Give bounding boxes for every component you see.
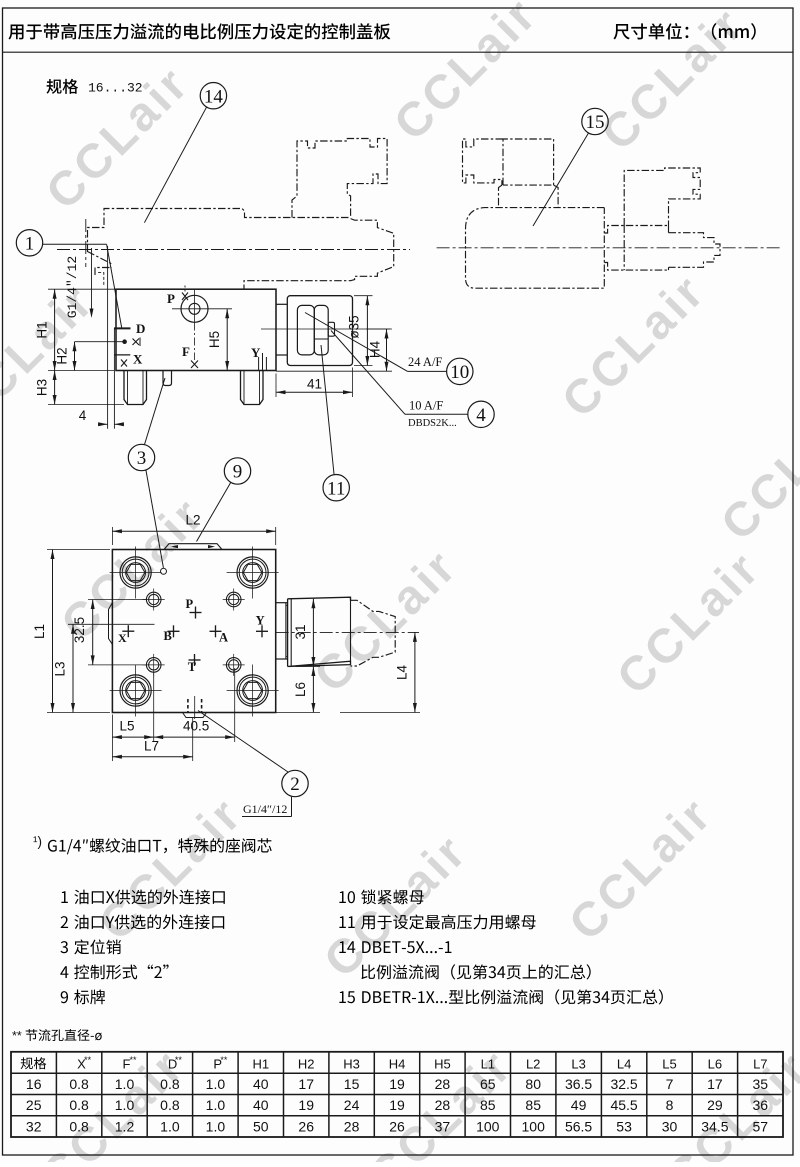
svg-text:36: 36 — [753, 1097, 769, 1113]
svg-text:L1: L1 — [481, 1057, 495, 1072]
svg-text:1.0: 1.0 — [206, 1118, 226, 1134]
svg-text:L6: L6 — [293, 682, 308, 697]
svg-text:36.5: 36.5 — [565, 1076, 592, 1092]
svg-text:29: 29 — [707, 1097, 723, 1113]
svg-text:11: 11 — [327, 478, 345, 499]
svg-text:Y: Y — [251, 345, 261, 360]
svg-text:P: P — [167, 291, 175, 306]
svg-text:L2: L2 — [526, 1057, 540, 1072]
svg-text:H5: H5 — [207, 331, 222, 348]
svg-text:31: 31 — [293, 624, 308, 639]
svg-text:L7: L7 — [753, 1057, 767, 1072]
svg-text:85: 85 — [480, 1097, 496, 1113]
svg-text:19: 19 — [389, 1097, 405, 1113]
svg-text:40.5: 40.5 — [183, 719, 209, 734]
svg-text:X: X — [118, 631, 127, 645]
svg-text:H3: H3 — [35, 379, 50, 396]
svg-text:DBDS2K...: DBDS2K... — [408, 418, 457, 429]
svg-text:56.5: 56.5 — [565, 1118, 592, 1134]
svg-text:2: 2 — [290, 774, 300, 795]
svg-text:3: 3 — [137, 448, 147, 469]
svg-text:G1/4″/12: G1/4″/12 — [243, 802, 287, 816]
svg-text:L2: L2 — [185, 513, 200, 528]
svg-text:H4: H4 — [389, 1057, 406, 1072]
svg-text:0.8: 0.8 — [69, 1097, 89, 1113]
svg-text:16: 16 — [26, 1076, 42, 1092]
svg-text:1.0: 1.0 — [115, 1076, 135, 1092]
svg-text:P: P — [186, 597, 194, 611]
svg-text:0.8: 0.8 — [69, 1076, 89, 1092]
svg-text:0.8: 0.8 — [69, 1118, 89, 1134]
svg-text:17: 17 — [298, 1076, 314, 1092]
svg-text:L4: L4 — [394, 665, 409, 681]
svg-text:L5: L5 — [119, 719, 134, 734]
svg-text:1.0: 1.0 — [206, 1076, 226, 1092]
svg-text:32: 32 — [26, 1118, 42, 1134]
svg-text:28: 28 — [435, 1097, 451, 1113]
svg-text:19: 19 — [389, 1076, 405, 1092]
svg-text:41: 41 — [307, 377, 322, 392]
svg-text:65: 65 — [480, 1076, 496, 1092]
svg-text:L3: L3 — [571, 1057, 585, 1072]
svg-text:L1: L1 — [32, 624, 47, 639]
svg-text:10 A/F: 10 A/F — [409, 399, 443, 413]
svg-text:16...32: 16...32 — [88, 81, 143, 96]
svg-text:49: 49 — [571, 1097, 587, 1113]
svg-text:G1/4″/12: G1/4″/12 — [65, 256, 80, 318]
svg-text:24 A/F: 24 A/F — [408, 355, 442, 369]
svg-text:L4: L4 — [617, 1057, 631, 1072]
svg-text:0.8: 0.8 — [160, 1076, 180, 1092]
svg-text:28: 28 — [344, 1118, 360, 1134]
svg-text:H3: H3 — [343, 1057, 360, 1072]
svg-text:**: ** — [175, 1055, 183, 1065]
svg-text:80: 80 — [525, 1076, 541, 1092]
svg-text:30: 30 — [662, 1118, 678, 1134]
svg-text:28: 28 — [435, 1076, 451, 1092]
svg-text:34.5: 34.5 — [701, 1118, 728, 1134]
svg-text:X: X — [133, 352, 143, 367]
svg-text:ø35: ø35 — [347, 315, 362, 338]
svg-text:40: 40 — [253, 1076, 269, 1092]
svg-text:H1: H1 — [35, 321, 50, 338]
svg-text:32.5: 32.5 — [610, 1076, 637, 1092]
svg-text:85: 85 — [525, 1097, 541, 1113]
svg-text:45.5: 45.5 — [610, 1097, 637, 1113]
svg-text:26: 26 — [389, 1118, 405, 1134]
svg-text:A: A — [219, 631, 228, 645]
svg-text:100: 100 — [522, 1118, 546, 1134]
svg-text:L5: L5 — [662, 1057, 676, 1072]
svg-text:H2: H2 — [298, 1057, 315, 1072]
svg-text:25: 25 — [26, 1097, 42, 1113]
svg-text:35: 35 — [753, 1076, 769, 1092]
svg-text:1.0: 1.0 — [160, 1118, 180, 1134]
svg-text:L7: L7 — [144, 739, 159, 754]
svg-text:50: 50 — [253, 1118, 269, 1134]
svg-text:L3: L3 — [53, 661, 68, 676]
svg-text:7: 7 — [666, 1076, 674, 1092]
svg-text:F: F — [182, 344, 190, 359]
svg-text:H1: H1 — [252, 1057, 269, 1072]
svg-text:**: ** — [130, 1055, 138, 1065]
svg-text:**: ** — [220, 1055, 228, 1065]
svg-text:1.2: 1.2 — [115, 1118, 135, 1134]
svg-text:1.0: 1.0 — [206, 1097, 226, 1113]
svg-text:L6: L6 — [708, 1057, 722, 1072]
svg-text:**: ** — [84, 1055, 92, 1065]
svg-text:15: 15 — [586, 112, 605, 133]
svg-text:26: 26 — [298, 1118, 314, 1134]
svg-text:Y: Y — [256, 614, 265, 628]
svg-text:H2: H2 — [55, 347, 70, 364]
svg-text:14: 14 — [204, 86, 224, 107]
svg-text:53: 53 — [616, 1118, 632, 1134]
svg-text:24: 24 — [344, 1097, 360, 1113]
svg-text:0.8: 0.8 — [160, 1097, 180, 1113]
svg-text:15: 15 — [344, 1076, 360, 1092]
svg-text:8: 8 — [666, 1097, 674, 1113]
svg-text:32.5: 32.5 — [72, 617, 87, 643]
svg-text:T: T — [188, 660, 197, 674]
svg-text:40: 40 — [253, 1097, 269, 1113]
svg-text:H5: H5 — [434, 1057, 451, 1072]
svg-text:19: 19 — [298, 1097, 314, 1113]
svg-text:¹): ¹) — [33, 834, 42, 849]
svg-text:10: 10 — [450, 362, 469, 383]
svg-text:1: 1 — [25, 233, 35, 254]
svg-text:D: D — [136, 321, 145, 336]
svg-text:57: 57 — [753, 1118, 769, 1134]
svg-text:9: 9 — [233, 462, 243, 483]
svg-text:**: ** — [12, 1029, 22, 1043]
svg-text:4: 4 — [79, 408, 87, 423]
svg-text:17: 17 — [707, 1076, 723, 1092]
svg-text:100: 100 — [476, 1118, 500, 1134]
svg-text:1.0: 1.0 — [115, 1097, 135, 1113]
svg-text:37: 37 — [435, 1118, 451, 1134]
svg-text:4: 4 — [476, 405, 486, 426]
